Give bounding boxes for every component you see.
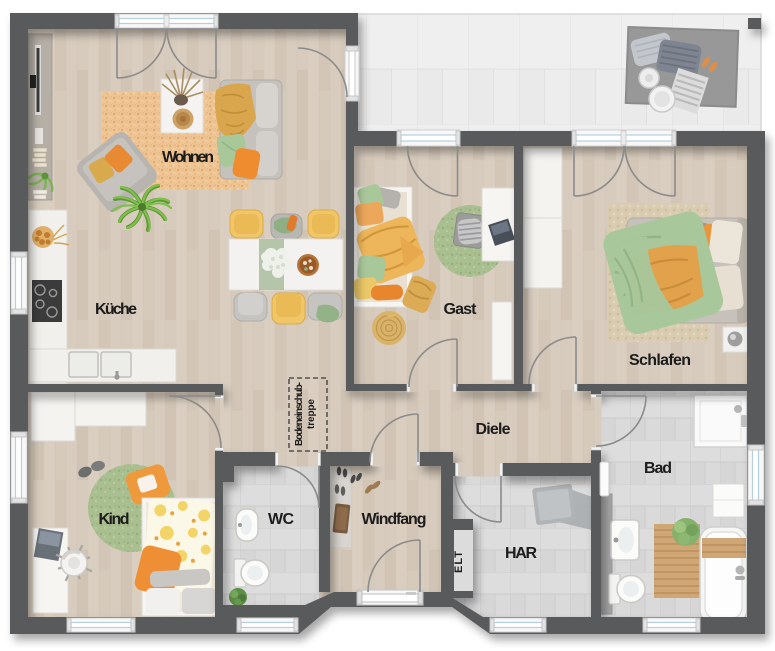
- svg-text:Küche: Küche: [95, 301, 137, 318]
- svg-text:Bad: Bad: [644, 460, 672, 477]
- svg-text:treppe: treppe: [306, 399, 317, 429]
- svg-text:WC: WC: [268, 511, 294, 528]
- svg-text:Schlafen: Schlafen: [629, 352, 691, 369]
- svg-text:Kind: Kind: [99, 511, 130, 528]
- svg-text:Windfang: Windfang: [362, 511, 427, 528]
- svg-text:Gast: Gast: [444, 301, 478, 318]
- svg-text:Diele: Diele: [476, 421, 511, 438]
- svg-text:Wohnen: Wohnen: [162, 149, 214, 166]
- svg-text:Bodeneinschub-: Bodeneinschub-: [294, 382, 305, 446]
- svg-text:HAR: HAR: [505, 545, 537, 562]
- svg-text:ELT: ELT: [453, 551, 465, 573]
